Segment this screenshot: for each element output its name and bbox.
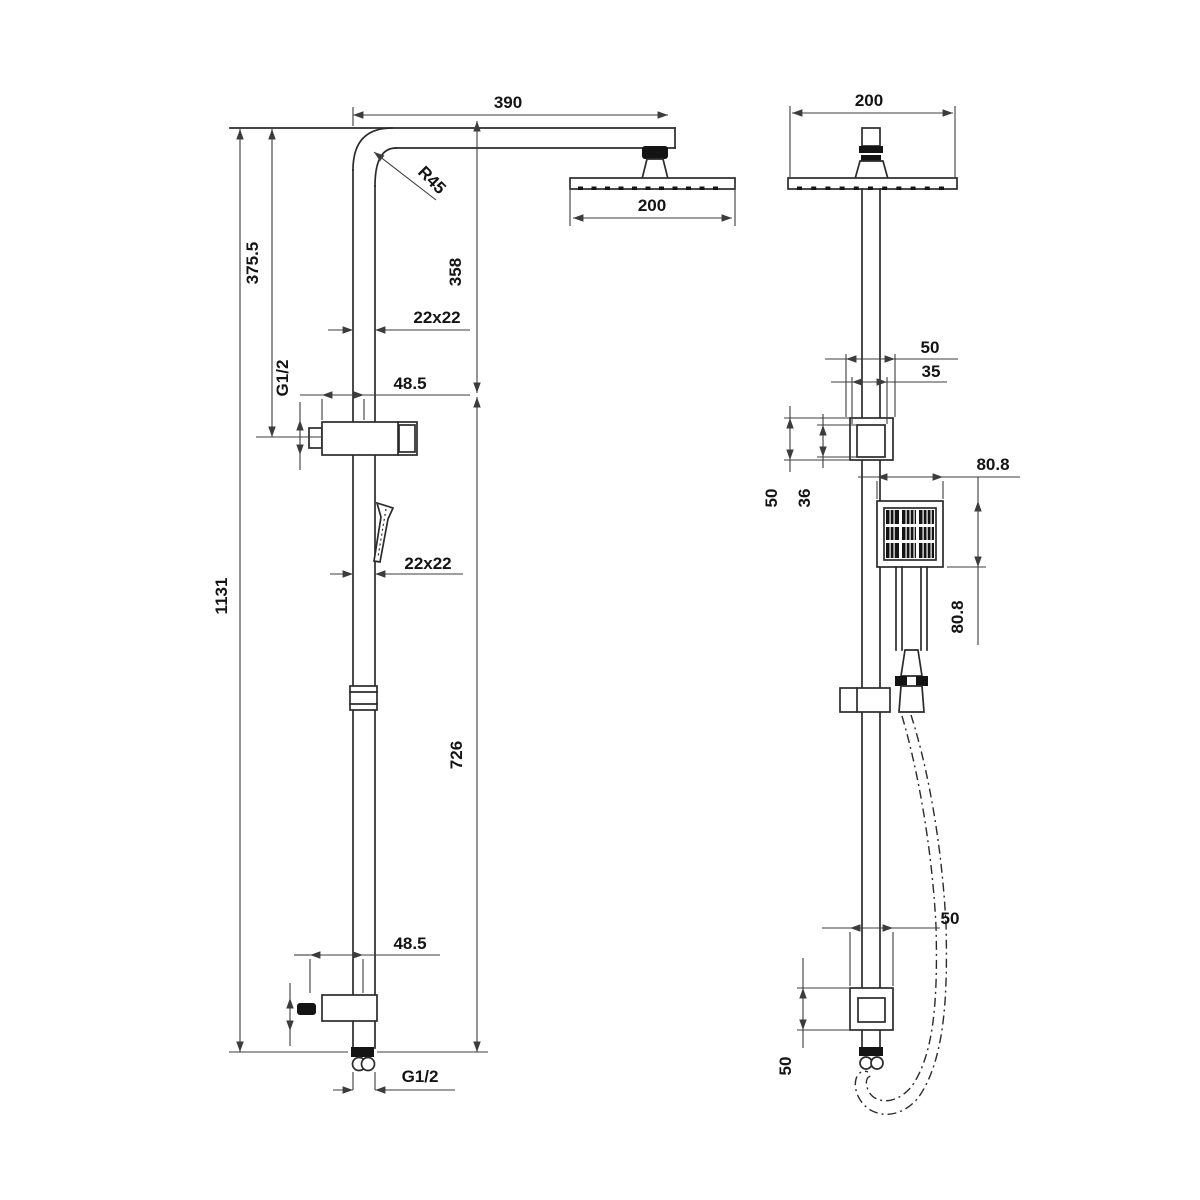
hand-shower-handle — [896, 567, 927, 676]
dim-handset-height: 80.8 — [947, 477, 986, 645]
dim-inlet-thread-lower: G1/2 — [333, 1067, 455, 1090]
bottom-outlet-front — [859, 1047, 883, 1069]
dim-lower-height-label: 726 — [447, 741, 466, 769]
dim-head-size-side-label: 200 — [638, 196, 666, 215]
dim-bracket-inner-height-upper-label: 36 — [795, 489, 814, 508]
side-view: 390 200 R45 375.5 1131 358 — [212, 93, 735, 1090]
dim-head-size-side: 200 — [570, 184, 735, 226]
dim-head-size-front-label: 200 — [855, 91, 883, 110]
dim-total-height: 1131 — [212, 129, 348, 1052]
slider-holder-front — [840, 676, 928, 712]
dim-arm-reach: 390 — [353, 93, 668, 126]
hand-shower-side — [374, 503, 393, 562]
wall-bracket-lower-side — [297, 995, 377, 1021]
overhead-shower-front — [788, 128, 957, 190]
dim-lower-height: 726 — [377, 397, 488, 1052]
dim-inlet-thread-upper-label: G1/2 — [273, 360, 292, 397]
dim-bracket-width-lower: 50 — [822, 909, 959, 986]
dim-bracket-offset-lower: 48.5 — [294, 934, 440, 993]
dim-head-drop-label: 358 — [446, 258, 465, 286]
dim-bend-radius: R45 — [374, 152, 450, 200]
dim-inlet-thread-upper: G1/2 — [273, 360, 300, 470]
dim-handset-width: 80.8 — [858, 455, 1020, 499]
drawing-sheet: 390 200 R45 375.5 1131 358 — [0, 0, 1200, 1200]
shower-system-technical-drawing: 390 200 R45 375.5 1131 358 — [0, 0, 1200, 1200]
dim-pipe-section-lower: 22x22 — [330, 554, 463, 574]
dim-arm-reach-label: 390 — [494, 93, 522, 112]
dim-bracket-offset-upper: 48.5 — [300, 374, 470, 420]
dim-handset-height-label: 80.8 — [948, 600, 967, 633]
dim-bracket-height-upper-label: 50 — [762, 489, 781, 508]
riser-pipe-front — [862, 189, 880, 1048]
wall-bracket-lower-front — [850, 988, 893, 1030]
dim-pipe-section-lower-label: 22x22 — [404, 554, 451, 573]
dim-bracket-inner-width-upper-label: 35 — [922, 362, 941, 381]
dim-bracket-inner-width-upper: 35 — [831, 362, 947, 424]
dim-head-drop: 358 — [446, 121, 477, 393]
slider-connector-side — [350, 686, 377, 710]
front-view: 200 50 35 50 — [762, 91, 1020, 1114]
dim-handset-width-label: 80.8 — [976, 455, 1009, 474]
wall-bracket-upper-front — [850, 418, 893, 460]
dim-pipe-section-upper: 22x22 — [328, 308, 470, 330]
overhead-shower-side — [570, 146, 735, 190]
dim-total-height-label: 1131 — [212, 578, 231, 615]
dim-bracket-offset-lower-label: 48.5 — [393, 934, 426, 953]
spray-grid — [886, 510, 934, 558]
dim-bend-radius-label: R45 — [414, 162, 449, 197]
dim-bracket-inner-height-upper: 36 — [795, 414, 857, 507]
dim-upper-height-label: 375.5 — [243, 242, 262, 285]
bottom-inlet-side — [351, 1047, 375, 1090]
dim-bracket-height-lower-label: 50 — [776, 1057, 795, 1076]
dim-inlet-thread-lower-label: G1/2 — [402, 1067, 439, 1086]
dim-pipe-section-upper-label: 22x22 — [413, 308, 460, 327]
dim-bracket-width-upper-label: 50 — [921, 338, 940, 357]
dim-bracket-offset-upper-label: 48.5 — [393, 374, 426, 393]
hand-shower-front — [877, 501, 943, 676]
dim-bracket-width-lower-label: 50 — [941, 909, 960, 928]
wall-bracket-upper-side — [309, 422, 417, 455]
dim-bracket-height-lower: 50 — [776, 958, 850, 1075]
